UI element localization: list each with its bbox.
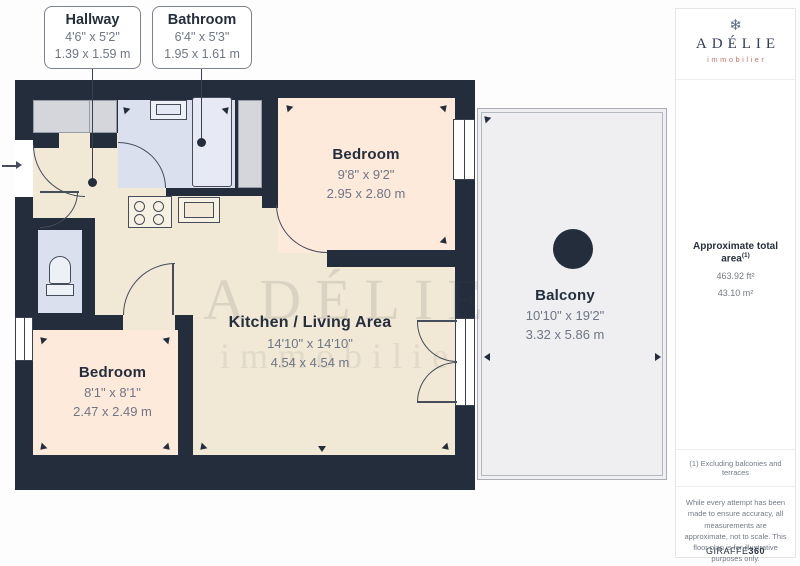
bedroom-top-bottom-wall: [327, 250, 455, 267]
footnote-ref: (1): [742, 252, 750, 259]
hallway-corridor-floor: [95, 218, 118, 315]
bathroom-sink-basin: [156, 104, 181, 115]
hallway-leader-dot: [88, 178, 97, 187]
dimension-tick: [480, 353, 490, 361]
bathroom-callout-title: Bathroom: [159, 12, 245, 28]
agency-tagline: immobilier: [676, 55, 795, 64]
bathroom-door-opening: [118, 188, 166, 196]
agency-name: ADÉLIE: [676, 36, 795, 53]
total-area-metric: 43.10 m²: [679, 288, 792, 298]
bathroom-wardrobe: [238, 100, 262, 188]
hallway-leader-line: [92, 66, 93, 182]
stove: [128, 196, 172, 228]
stove-burner: [134, 214, 145, 225]
toilet-bowl: [49, 256, 71, 284]
total-area-imperial: 463.92 ft²: [679, 271, 792, 281]
hallway-metric: 1.39 x 1.59 m: [51, 46, 134, 63]
kitchen-sink-basin: [184, 202, 214, 218]
stove-burner: [134, 201, 145, 212]
bedroom-bottom-window: [15, 317, 33, 361]
hallway-callout: Hallway 4'6" x 5'2" 1.39 x 1.59 m: [44, 6, 141, 69]
total-area-title: Approximate total area(1): [679, 241, 792, 264]
toilet-tank: [46, 284, 74, 296]
area-footnote: (1) Excluding balconies and terraces: [679, 459, 792, 477]
divider: [676, 449, 795, 450]
credit-suffix: 360: [748, 546, 765, 556]
balcony-area: [477, 108, 667, 480]
floor-plan-page: ADÉLIE immobilier Hallway 4'6" x 5'2" 1.…: [0, 0, 800, 566]
hallway-closet: [33, 100, 117, 133]
hallway-closet-divider: [89, 100, 90, 133]
closet-wall-stub-right: [90, 133, 117, 148]
balcony-door-threshold: [455, 318, 475, 406]
hallway-imperial: 4'6" x 5'2": [51, 29, 134, 46]
total-area-block: Approximate total area(1) 463.92 ft² 43.…: [679, 241, 792, 298]
dimension-tick: [318, 446, 326, 456]
agency-logo: ❄ ADÉLIE immobilier: [676, 9, 795, 80]
balcony-table: [553, 229, 593, 269]
total-area-title-text: Approximate total area: [693, 241, 778, 264]
credit-brand: GIRAFFE: [706, 546, 749, 556]
kitchen-floor-east: [278, 253, 455, 455]
stove-burner: [153, 214, 164, 225]
info-sidebar: ❄ ADÉLIE immobilier Approximate total ar…: [675, 8, 796, 558]
bathroom-leader-line: [201, 66, 202, 143]
bathroom-leader-dot: [197, 138, 206, 147]
bedroom-bottom-floor: [33, 330, 178, 455]
bedroom-bottom-door-opening: [123, 315, 175, 330]
hallway-callout-title: Hallway: [51, 12, 134, 28]
bathroom-metric: 1.95 x 1.61 m: [159, 46, 245, 63]
bedroom-top-window: [453, 119, 475, 180]
stove-burner: [153, 201, 164, 212]
giraffe360-credit: GIRAFFE360: [676, 546, 795, 556]
bathroom-imperial: 6'4" x 5'3": [159, 29, 245, 46]
snowflake-icon: ❄: [676, 18, 795, 33]
divider: [676, 486, 795, 487]
balcony-door-leaf-bottom: [417, 401, 457, 403]
bathroom-callout: Bathroom 6'4" x 5'3" 1.95 x 1.61 m: [152, 6, 252, 69]
dimension-tick: [655, 353, 665, 361]
kitchen-floor-south: [193, 315, 278, 455]
entrance-arrow-icon: [2, 165, 16, 167]
